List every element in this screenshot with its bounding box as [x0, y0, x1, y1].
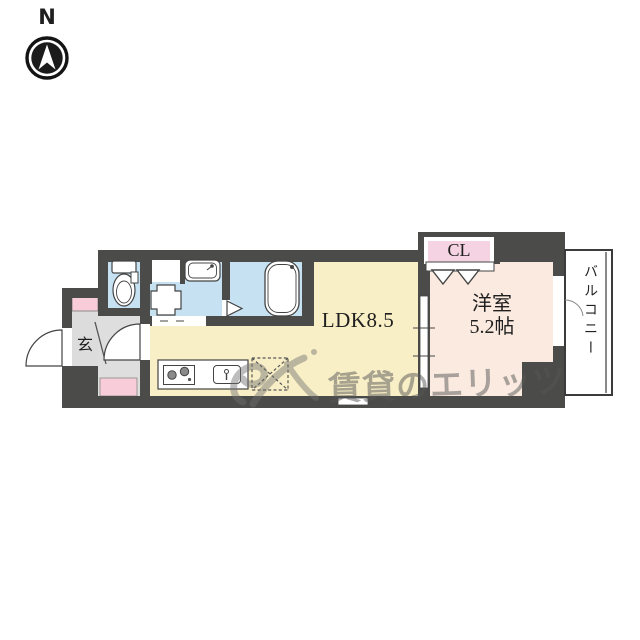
north-compass-icon — [27, 38, 67, 78]
wall — [147, 260, 152, 284]
wall — [62, 288, 72, 328]
hall-door-opening — [140, 324, 150, 360]
stove-knob — [188, 378, 191, 381]
north-label: N — [33, 5, 61, 29]
balcony-label: バルコニー — [579, 264, 599, 392]
wall — [62, 366, 98, 398]
shoe-cabinet — [72, 297, 98, 311]
stove-burner — [180, 367, 188, 375]
toilet-tank — [112, 261, 136, 273]
bath-faucet-icon — [290, 265, 294, 269]
wall — [180, 260, 185, 284]
hallway-cabinet — [100, 378, 137, 396]
entrance-door-swing — [26, 330, 62, 366]
stove-burner — [168, 371, 176, 379]
balcony-door-opening — [553, 276, 565, 346]
wall — [140, 316, 150, 324]
wall — [553, 262, 565, 276]
western-room-label-line2: 5.2帖 — [436, 316, 548, 339]
western-room-label-line1: 洋室 — [436, 293, 548, 316]
western-room-label: 洋室 5.2帖 — [436, 293, 548, 339]
wall — [140, 360, 150, 396]
entrance-label: 玄 — [71, 331, 99, 355]
wall — [98, 308, 140, 316]
toilet-paper-holder — [131, 272, 138, 283]
closet-label: CL — [428, 240, 490, 261]
wall — [98, 250, 108, 316]
watermark-text: 賃貸のエリッツ — [327, 354, 567, 410]
wall — [498, 232, 565, 262]
ldk-label: LDK8.5 — [300, 308, 416, 333]
storage-space — [152, 260, 180, 282]
floor-plan: N 玄 LDK8.5 CL 洋室 5.2帖 バルコニー 賃貸のエリッツ — [0, 0, 640, 640]
